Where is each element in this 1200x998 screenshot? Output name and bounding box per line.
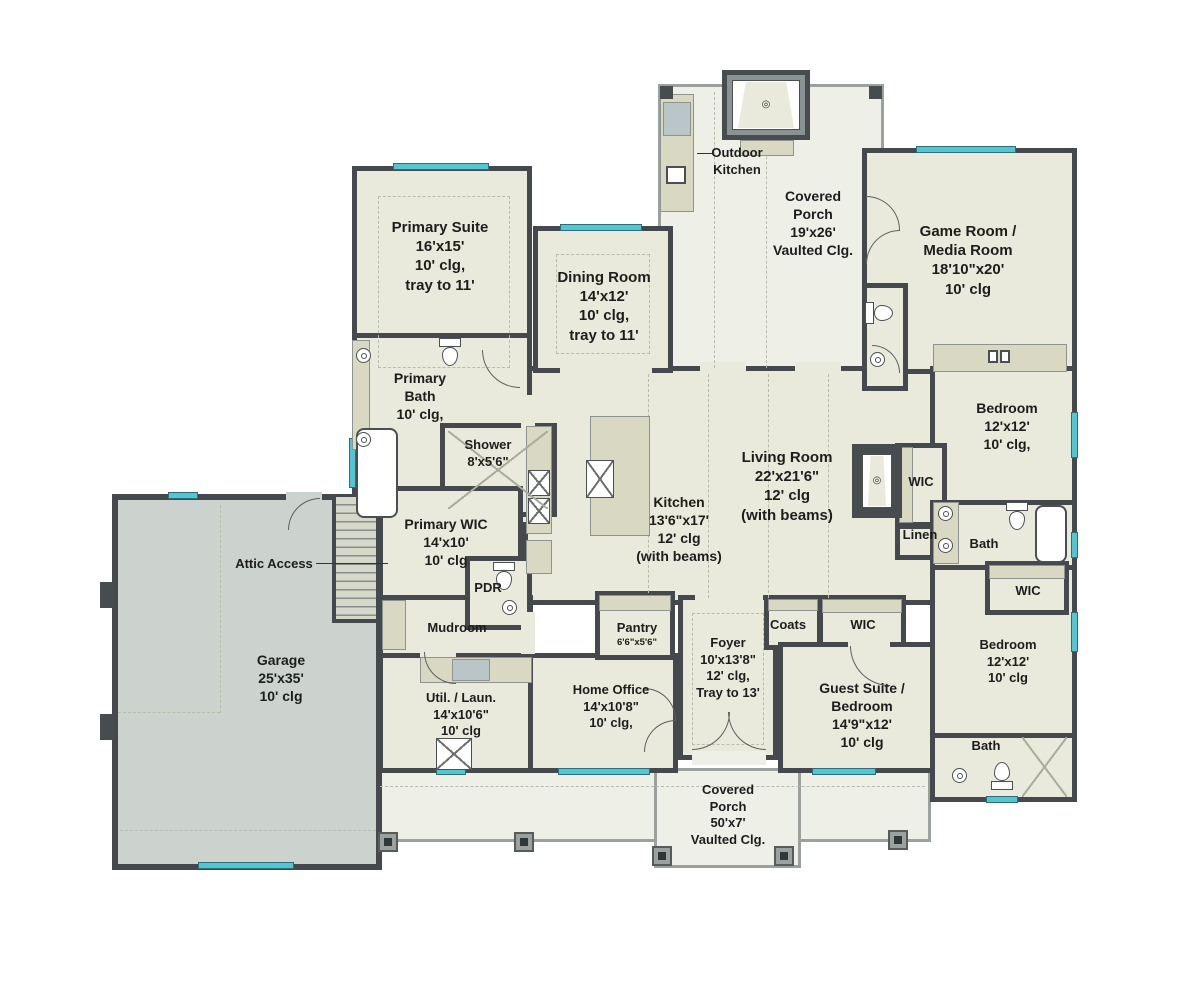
porch-post [774,846,794,866]
range-fixture [586,460,614,498]
label-coats: Coats [770,617,806,634]
label-front-covered-porch: CoveredPorch50'x7'Vaulted Clg. [691,782,765,849]
window [1071,532,1078,558]
door-opening [521,612,535,654]
label-util-laun: Util. / Laun.14'x10'6"10' clg [426,690,496,740]
label-guest-suite: Guest Suite /Bedroom14'9"x12'10' clg [819,680,905,752]
outdoor-fireplace: ◎ [722,70,810,140]
label-garage: Garage25'x35'10' clg [257,652,305,706]
floor-plan: ◎ ◎ Primary Suite16'x15'10' clg,tray to … [0,0,1200,998]
attic-access-leader-line [316,563,388,564]
window [393,163,489,170]
garage-wall-post [100,582,114,608]
porch-post [869,86,882,99]
window [916,146,1016,153]
sink-fixture [356,348,371,363]
porch-post [514,832,534,852]
porch-line [714,92,715,368]
window [168,492,198,499]
mudroom-lockers [382,600,406,650]
flue-icon: ◎ [762,99,771,110]
room-front-covered-porch [373,768,931,842]
label-rear-covered-porch: CoveredPorch19'x26'Vaulted Clg. [773,188,853,260]
label-foyer: Foyer10'x13'8"12' clg,Tray to 13' [696,635,760,702]
door-opening [478,388,522,400]
pantry-shelf [599,595,671,611]
toilet-fixture [865,301,895,325]
label-shower: Shower8'x5'6" [465,437,512,470]
garage-wall-post [100,714,114,740]
outdoor-sink-fixture [666,166,686,184]
label-primary-bath: PrimaryBath10' clg, [394,370,446,424]
label-pdr: PDR [474,580,501,597]
sink-fixture [952,768,967,783]
label-wic-lower: WIC [1015,583,1040,600]
porch-line [380,786,925,787]
room-pool-bath [862,283,908,391]
garage-ceiling-line [120,830,376,831]
garage-ceiling-line [220,505,221,713]
grill-fixture [663,102,691,136]
label-mudroom: Mudroom [427,620,486,637]
pantry-dims: 6'6"x5'6" [617,637,657,649]
label-game-room: Game Room /Media Room18'10"x20'10' clg [920,222,1017,299]
front-door-opening [692,751,766,765]
label-living-room: Living Room22'x21'6"12' clg(with beams) [741,448,833,525]
window [1071,612,1078,652]
porch-post [888,830,908,850]
toilet-fixture [990,760,1014,790]
av-equipment [1000,350,1010,363]
window [560,224,642,231]
flue-icon: ◎ [873,475,882,486]
window [986,796,1018,803]
label-bedroom-upper: Bedroom12'x12'10' clg, [976,400,1037,454]
door-opening [695,593,763,605]
label-wic-right: WIC [908,474,933,491]
label-dining-room: Dining Room14'x12'10' clg,tray to 11' [557,268,650,345]
living-room-fireplace: ◎ [852,444,902,518]
label-pantry: Pantry 6'6"x5'6" [617,620,657,649]
pantry-name: Pantry [617,620,657,635]
bathtub-fixture [1035,505,1067,563]
coats-shelf [768,599,818,611]
porch-post [652,846,672,866]
window [1071,412,1078,458]
washer-fixture [452,659,490,681]
label-attic-access: Attic Access [235,556,313,573]
label-bath-lower: Bath [972,738,1001,755]
porch-post [660,86,673,99]
sink-fixture [502,600,517,615]
toilet-fixture [438,338,462,368]
label-bedroom-lower: Bedroom12'x12'10' clg [979,637,1036,687]
window [558,768,650,775]
label-wic-guest: WIC [850,617,875,634]
wic-shelf [822,599,902,613]
label-kitchen: Kitchen13'6"x17'12' clg(with beams) [636,494,722,566]
label-outdoor-kitchen: OutdoorKitchen [711,145,762,178]
label-linen: Linen [903,527,938,544]
garage-ceiling-line [118,712,220,713]
door-opening [795,362,841,374]
door-opening [560,366,652,378]
label-bath-right: Bath [970,536,999,553]
window [198,862,294,869]
sink-fixture [938,506,953,521]
sink-fixture [938,538,953,553]
av-equipment [988,350,998,363]
dryer-fixture [436,738,472,770]
porch-post [378,832,398,852]
window [812,768,876,775]
label-primary-suite: Primary Suite16'x15'10' clg,tray to 11' [392,218,489,295]
toilet-fixture [1005,502,1029,532]
door-opening [700,362,746,374]
sink-fixture [356,432,371,447]
label-home-office: Home Office14'x10'8"10' clg, [573,682,650,732]
refrigerator [526,540,552,574]
shower-pan [1022,737,1067,797]
wic-shelf [989,565,1065,579]
label-primary-wic: Primary WIC14'x10'10' clg [404,516,487,570]
